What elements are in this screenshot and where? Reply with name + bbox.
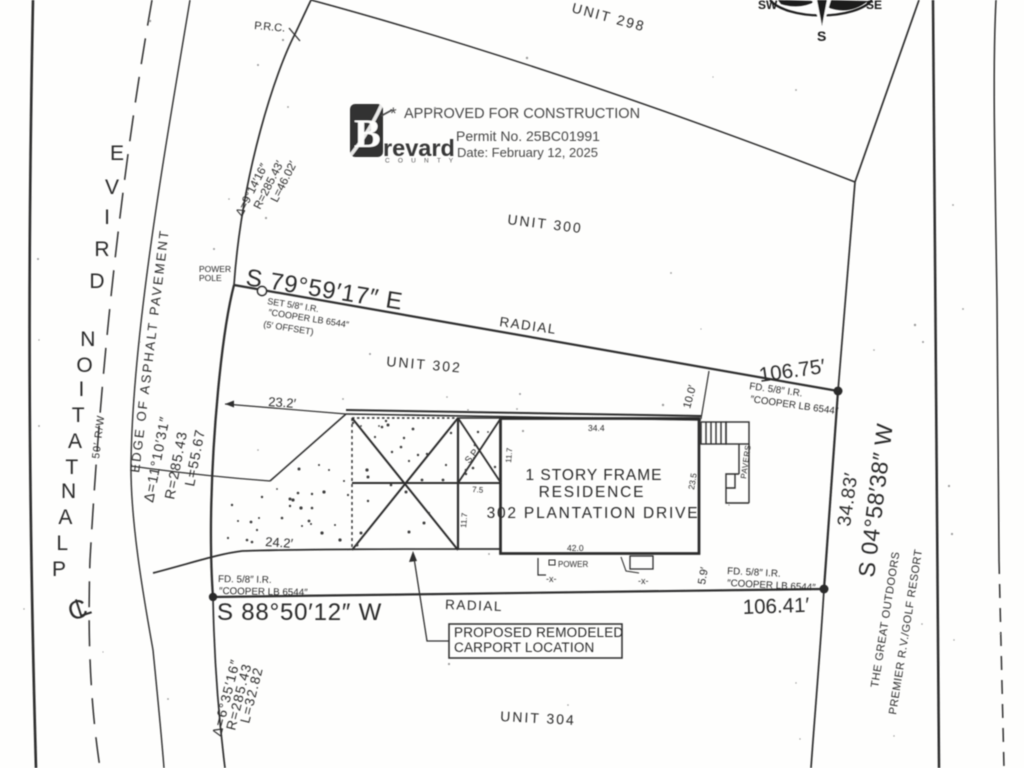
svg-text:SW: SW [758,0,778,12]
svg-text:N: N [61,480,76,503]
svg-text:″COOPER LB 6544″: ″COOPER LB 6544″ [219,586,308,599]
svg-text:A: A [58,506,72,529]
svg-text:C O U N T Y: C O U N T Y [385,158,456,165]
svg-text:D: D [89,270,104,293]
svg-text:V: V [105,176,119,199]
svg-text:7.5: 7.5 [472,485,484,495]
svg-text:L: L [56,532,68,555]
svg-text:S 88°50′12″ W: S 88°50′12″ W [217,599,382,626]
svg-text:POWER: POWER [558,560,588,569]
svg-text:34.4: 34.4 [588,423,605,433]
svg-text:B: B [354,111,381,156]
svg-text:A: A [68,430,82,453]
svg-text:24.2′: 24.2′ [265,534,294,551]
svg-text:106.41′: 106.41′ [742,594,809,619]
svg-text:CARPORT LOCATION: CARPORT LOCATION [454,640,594,655]
svg-text:PROPOSED REMODELED: PROPOSED REMODELED [454,625,623,640]
svg-text:11.7: 11.7 [459,512,469,528]
svg-text:Permit No. 25BC01991: Permit No. 25BC01991 [456,128,600,144]
svg-text:-x-: -x- [638,576,649,586]
svg-text:FD. 5/8″ I.R.: FD. 5/8″ I.R. [218,574,272,586]
svg-text:T: T [72,404,85,427]
svg-text:APPROVED FOR CONSTRUCTION: APPROVED FOR CONSTRUCTION [404,106,640,122]
svg-text:POLE: POLE [199,273,222,283]
svg-text:O: O [76,354,92,377]
svg-text:Date: February 12, 2025: Date: February 12, 2025 [457,145,598,160]
svg-text:1 STORY FRAME: 1 STORY FRAME [525,467,662,484]
svg-text:SE: SE [866,0,882,12]
svg-text:I: I [104,206,110,229]
svg-text:E: E [110,142,124,165]
svg-text:N: N [80,328,95,351]
svg-text:*: * [390,104,397,123]
svg-text:S: S [817,28,826,44]
svg-text:42.0: 42.0 [567,543,584,553]
svg-text:23.2′: 23.2′ [268,394,297,411]
svg-text:-x-: -x- [546,574,557,584]
svg-text:302 PLANTATION DRIVE: 302 PLANTATION DRIVE [487,505,700,522]
svg-text:R: R [94,238,109,261]
svg-text:I: I [78,378,84,401]
svg-text:P: P [52,558,66,581]
svg-text:T: T [65,456,78,479]
svg-text:RESIDENCE: RESIDENCE [539,484,646,501]
svg-text:11.7: 11.7 [504,447,514,463]
svg-text:RADIAL: RADIAL [445,597,503,614]
